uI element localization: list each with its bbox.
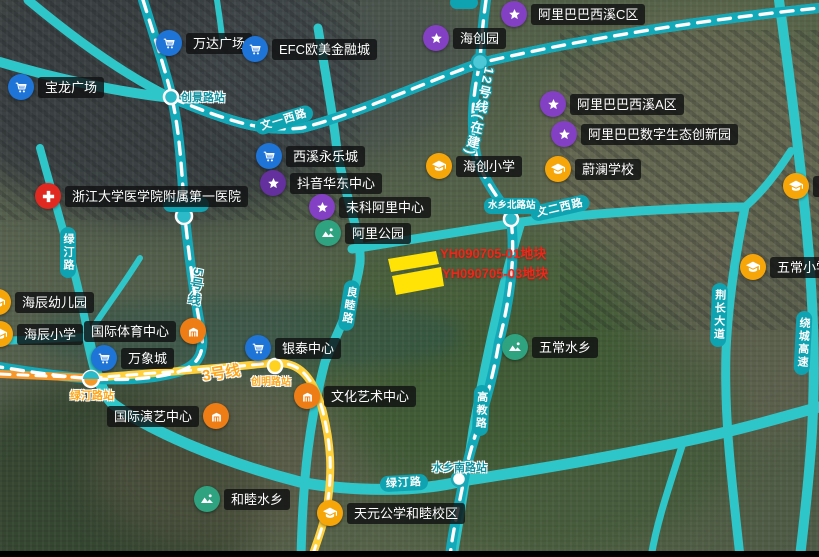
building-glyph xyxy=(186,324,201,339)
park-icon[interactable] xyxy=(502,334,528,360)
hospital-cross-glyph xyxy=(41,189,56,204)
poi-label: 国际体育中心 xyxy=(84,321,176,342)
cart-icon-glyph xyxy=(14,80,29,95)
star-icon-glyph xyxy=(546,97,561,112)
star-icon[interactable] xyxy=(551,121,577,147)
map-lines-layer xyxy=(0,0,819,557)
cart-icon-glyph xyxy=(97,351,112,366)
poi-marker-五[interactable]: 五 xyxy=(783,173,819,199)
star-icon-glyph xyxy=(315,200,330,215)
star-icon[interactable] xyxy=(423,25,449,51)
school-icon[interactable] xyxy=(0,289,11,315)
road-label-水乡北路站: 水乡北路站 xyxy=(484,198,540,214)
poi-label: 文化艺术中心 xyxy=(324,386,416,407)
cart-icon[interactable] xyxy=(256,143,282,169)
poi-marker-文化艺术中心[interactable]: 文化艺术中心 xyxy=(294,383,416,409)
poi-marker-西溪永乐城[interactable]: 西溪永乐城 xyxy=(256,143,365,169)
park-icon[interactable] xyxy=(194,486,220,512)
cart-icon[interactable] xyxy=(156,30,182,56)
graduation-cap-glyph xyxy=(745,259,761,275)
poi-marker-宝龙广场[interactable]: 宝龙广场 xyxy=(8,74,104,100)
poi-label: 银泰中心 xyxy=(275,338,341,359)
poi-label: 浙江大学医学院附属第一医院 xyxy=(65,186,248,207)
school-icon[interactable] xyxy=(317,500,343,526)
poi-label: 五常水乡 xyxy=(532,337,598,358)
poi-marker-阿里巴巴数字生态创新园[interactable]: 阿里巴巴数字生态创新园 xyxy=(551,121,738,147)
poi-marker-阿里巴巴西溪A区[interactable]: 阿里巴巴西溪A区 xyxy=(540,91,684,117)
poi-marker-五常水乡[interactable]: 五常水乡 xyxy=(502,334,598,360)
satellite-map[interactable]: 文一西路文二西路绿汀路良睦路高教路荆长大道绕城高速绿汀路水乡北路站 创景路站水乡… xyxy=(0,0,819,557)
poi-marker-阿里公园[interactable]: 阿里公园 xyxy=(315,220,411,246)
park-mountains-glyph xyxy=(199,491,215,507)
graduation-cap-glyph xyxy=(0,326,8,342)
cross-icon[interactable] xyxy=(35,183,61,209)
park-mountains-glyph xyxy=(320,225,336,241)
cart-icon[interactable] xyxy=(242,36,268,62)
building-icon[interactable] xyxy=(294,383,320,409)
star-icon-glyph xyxy=(507,7,522,22)
plot-code-label-YH090705-03地块: YH090705-03地块 xyxy=(442,263,548,282)
poi-label: 阿里巴巴西溪A区 xyxy=(570,94,684,115)
park-icon[interactable] xyxy=(315,220,341,246)
map-text-绿汀路站: 绿汀路站 xyxy=(70,387,114,403)
school-icon[interactable] xyxy=(426,153,452,179)
poi-label: 阿里巴巴数字生态创新园 xyxy=(581,124,738,145)
poi-label: 蔚澜学校 xyxy=(575,159,641,180)
poi-label: 未科阿里中心 xyxy=(339,197,431,218)
station-pill-partial xyxy=(450,0,478,9)
cart-icon-glyph xyxy=(162,36,177,51)
star-icon-glyph xyxy=(266,176,281,191)
poi-label: 西溪永乐城 xyxy=(286,146,365,167)
cart-icon[interactable] xyxy=(91,345,117,371)
star-icon[interactable] xyxy=(540,91,566,117)
station-dot[interactable] xyxy=(504,212,518,226)
poi-label: 阿里巴巴西溪C区 xyxy=(531,4,645,25)
school-icon[interactable] xyxy=(783,173,809,199)
poi-label: 宝龙广场 xyxy=(38,77,104,98)
poi-marker-EFC欧美金融城[interactable]: EFC欧美金融城 xyxy=(242,36,377,62)
school-icon[interactable] xyxy=(740,254,766,280)
star-icon-glyph xyxy=(557,127,572,142)
poi-marker-海辰小学[interactable]: 海辰小学 xyxy=(0,321,83,347)
road-label-高教路: 高教路 xyxy=(472,385,491,437)
star-icon-glyph xyxy=(429,31,444,46)
cart-icon-glyph xyxy=(262,149,277,164)
building-glyph xyxy=(209,409,224,424)
poi-label: 和睦水乡 xyxy=(224,489,290,510)
southeast-branch-road xyxy=(651,446,682,557)
building-icon[interactable] xyxy=(203,403,229,429)
graduation-cap-glyph xyxy=(550,161,566,177)
cart-icon[interactable] xyxy=(8,74,34,100)
poi-marker-万达广场[interactable]: 万达广场 xyxy=(156,30,252,56)
poi-marker-国际演艺中心[interactable]: 国际演艺中心 xyxy=(107,403,229,429)
school-icon[interactable] xyxy=(0,321,13,347)
poi-marker-国际体育中心[interactable]: 国际体育中心 xyxy=(84,318,206,344)
poi-label: 海辰幼儿园 xyxy=(15,292,94,313)
poi-label: 海创园 xyxy=(453,28,506,49)
graduation-cap-glyph xyxy=(0,294,6,310)
road-label-绿汀路: 绿汀路 xyxy=(60,227,76,278)
map-text-创景路站: 创景路站 xyxy=(181,89,225,105)
poi-marker-万象城[interactable]: 万象城 xyxy=(91,345,174,371)
cart-icon[interactable] xyxy=(245,335,271,361)
poi-marker-海创园[interactable]: 海创园 xyxy=(423,25,506,51)
plot-YH090705-03[interactable] xyxy=(392,267,444,295)
poi-marker-阿里巴巴西溪C区[interactable]: 阿里巴巴西溪C区 xyxy=(501,1,645,27)
station-dot[interactable] xyxy=(164,90,178,104)
map-text-水乡南路站: 水乡南路站 xyxy=(432,459,487,475)
cart-icon-glyph xyxy=(251,341,266,356)
poi-marker-海创小学[interactable]: 海创小学 xyxy=(426,153,522,179)
poi-label: 阿里公园 xyxy=(345,223,411,244)
poi-marker-抖音华东中心[interactable]: 抖音华东中心 xyxy=(260,170,382,196)
poi-marker-海辰幼儿园[interactable]: 海辰幼儿园 xyxy=(0,289,94,315)
building-icon[interactable] xyxy=(180,318,206,344)
park-mountains-glyph xyxy=(507,339,523,355)
graduation-cap-glyph xyxy=(788,178,804,194)
poi-label: 五常小学 xyxy=(770,257,819,278)
plot-code-label-YH090705-01地块: YH090705-01地块 xyxy=(440,243,546,262)
cart-icon-glyph xyxy=(248,42,263,57)
graduation-cap-glyph xyxy=(322,505,338,521)
road-label-绕城高速: 绕城高速 xyxy=(793,311,812,376)
poi-marker-天元公学和睦校区[interactable]: 天元公学和睦校区 xyxy=(317,500,465,526)
road-label-绿汀路: 绿汀路 xyxy=(380,474,429,492)
building-glyph xyxy=(300,389,315,404)
star-icon[interactable] xyxy=(309,194,335,220)
poi-marker-和睦水乡[interactable]: 和睦水乡 xyxy=(194,486,290,512)
poi-label: 天元公学和睦校区 xyxy=(347,503,465,524)
poi-label: 五 xyxy=(813,176,819,197)
poi-label: EFC欧美金融城 xyxy=(272,39,377,60)
poi-label: 海辰小学 xyxy=(17,324,83,345)
graduation-cap-glyph xyxy=(431,158,447,174)
bottom-black-bar xyxy=(0,551,819,557)
poi-marker-浙江大学医学院附属第一医院[interactable]: 浙江大学医学院附属第一医院 xyxy=(35,183,248,209)
map-text-创明路站: 创明路站 xyxy=(251,373,291,388)
poi-marker-未科阿里中心[interactable]: 未科阿里中心 xyxy=(309,194,431,220)
poi-label: 海创小学 xyxy=(456,156,522,177)
poi-label: 国际演艺中心 xyxy=(107,406,199,427)
star-icon[interactable] xyxy=(260,170,286,196)
school-icon[interactable] xyxy=(545,156,571,182)
station-dot[interactable] xyxy=(268,359,282,373)
poi-label: 万象城 xyxy=(121,348,174,369)
road-label-荆长大道: 荆长大道 xyxy=(710,283,728,348)
poi-label: 抖音华东中心 xyxy=(290,173,382,194)
star-icon[interactable] xyxy=(501,1,527,27)
poi-marker-蔚澜学校[interactable]: 蔚澜学校 xyxy=(545,156,641,182)
poi-marker-五常小学[interactable]: 五常小学 xyxy=(740,254,819,280)
poi-marker-银泰中心[interactable]: 银泰中心 xyxy=(245,335,341,361)
